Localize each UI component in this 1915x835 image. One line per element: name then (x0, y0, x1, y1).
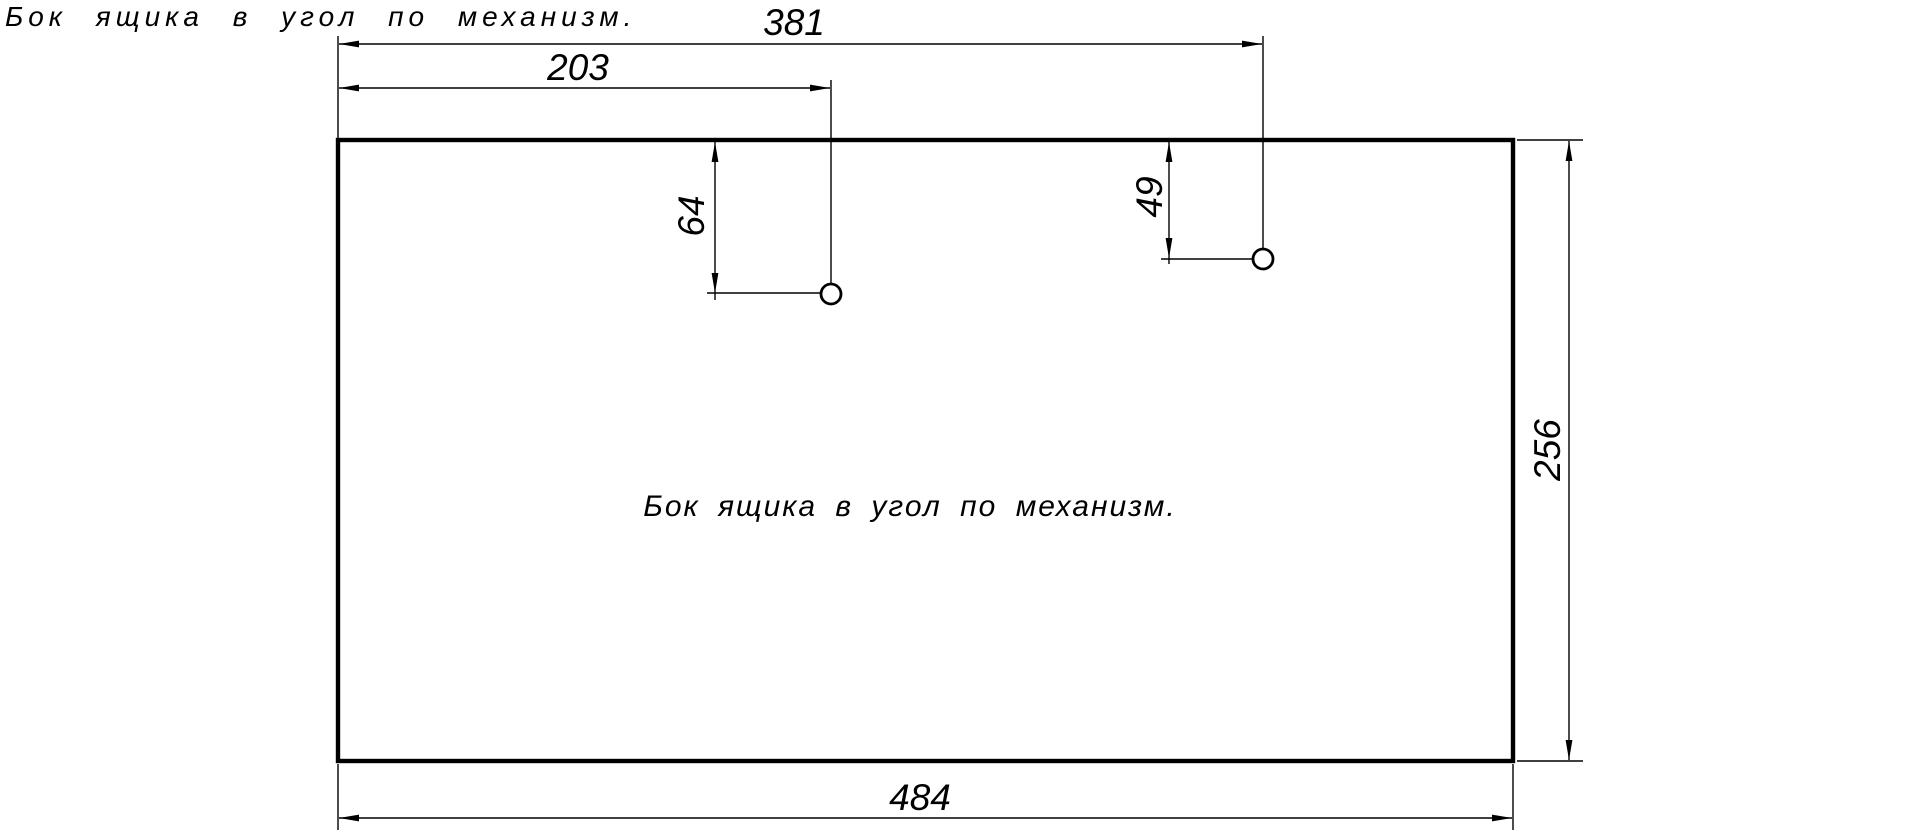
technical-drawing-canvas: Бок ящика в угол по механизм. Бок ящика … (0, 0, 1915, 835)
dim-label-484: 484 (889, 777, 951, 818)
panel-outline (338, 140, 1513, 761)
dim-hole2-from-left: 381 (338, 2, 1263, 248)
dim-label-203: 203 (546, 47, 609, 88)
dim-label-381: 381 (763, 2, 825, 43)
drawing-title: Бок ящика в угол по механизм. (5, 1, 636, 32)
dim-panel-height: 256 (1517, 140, 1583, 761)
panel: Бок ящика в угол по механизм. (338, 140, 1513, 761)
dim-hole1-from-top: 64 (671, 142, 820, 300)
hole-right (1253, 249, 1273, 269)
part-label: Бок ящика в угол по механизм. (643, 490, 1176, 523)
dim-hole1-from-left: 203 (339, 47, 831, 283)
hole-left (821, 284, 841, 304)
drawing-page: Бок ящика в угол по механизм. Бок ящика … (0, 0, 1915, 835)
dim-hole2-from-top: 49 (1129, 142, 1252, 264)
dim-label-64: 64 (671, 195, 712, 236)
dim-label-256: 256 (1527, 419, 1568, 482)
dim-label-49: 49 (1129, 176, 1170, 217)
dim-panel-width: 484 (338, 764, 1513, 830)
